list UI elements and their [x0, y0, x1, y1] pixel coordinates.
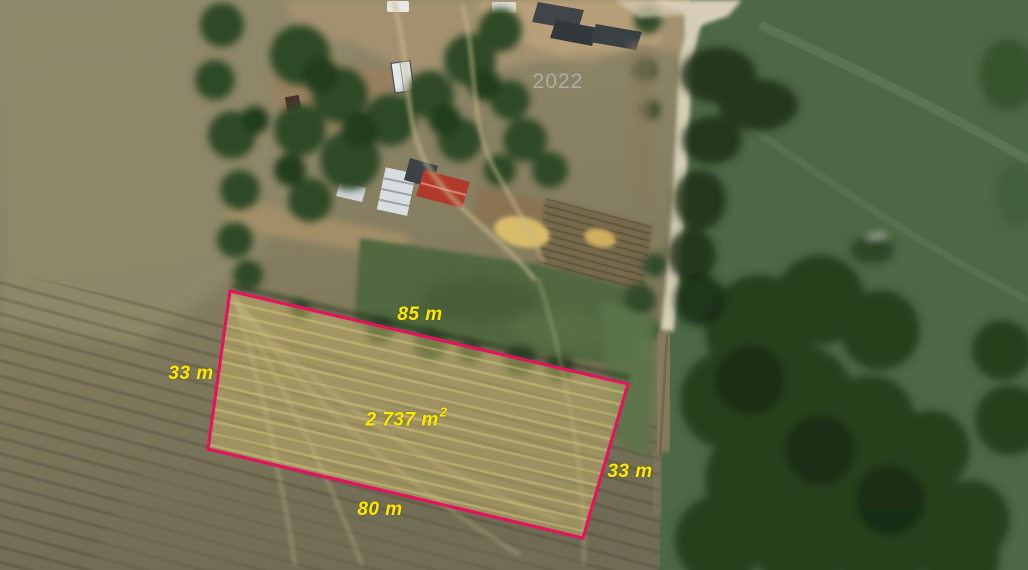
measurement-label-bottom: 80 m — [357, 499, 402, 521]
satellite-view: 85 m 33 m 33 m 80 m 2 737 m2 2022 — [0, 0, 1028, 570]
area-value: 2 737 m — [366, 410, 439, 431]
measurement-label-right: 33 m — [607, 461, 652, 483]
area-exponent: 2 — [440, 404, 448, 419]
measurement-label-left: 33 m — [168, 363, 213, 385]
imagery-year-watermark: 2022 — [533, 70, 584, 94]
aerial-imagery — [0, 0, 1028, 570]
measurement-label-area: 2 737 m2 — [366, 406, 447, 431]
measurement-label-top: 85 m — [397, 304, 442, 326]
